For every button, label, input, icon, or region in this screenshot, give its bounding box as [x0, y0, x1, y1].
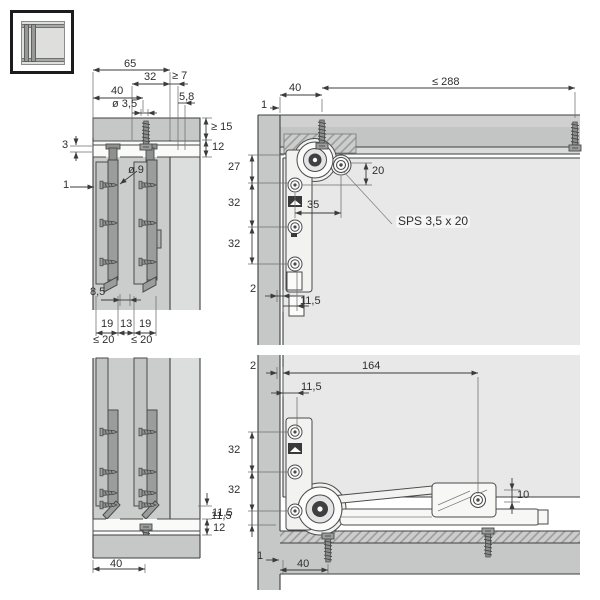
- dim-11-5-top: 11,5: [301, 381, 322, 393]
- dim-32b: 32: [228, 484, 240, 496]
- dim-2: 2: [250, 283, 256, 295]
- dim-11-5: 11,5: [300, 295, 321, 307]
- dim-3: 3: [62, 139, 68, 151]
- dim-19a: 19: [101, 318, 113, 330]
- dim-max-20b: ≤ 20: [131, 334, 152, 346]
- technical-drawing-page: 65 32 ≥ 7 40 5,8 ø 3,5 ≥ 15 12 3 1 ø 9 8…: [0, 0, 600, 600]
- dim-max-288: ≤ 288: [432, 76, 459, 88]
- dim-13: 13: [120, 318, 132, 330]
- dim-10: 10: [517, 489, 529, 501]
- dim-12: 12: [213, 522, 225, 534]
- dim-40: 40: [110, 558, 122, 570]
- dim-min-15: ≥ 15: [211, 121, 232, 133]
- dim-width-40: 40: [111, 85, 123, 97]
- dim-1: 1: [261, 99, 267, 111]
- top-panel: [258, 115, 580, 127]
- dim-32a: 32: [228, 197, 240, 209]
- dim-20: 20: [372, 165, 384, 177]
- dim-32b: 32: [228, 238, 240, 250]
- dim-dia-3-5: ø 3,5: [112, 98, 137, 110]
- door-side-view: [283, 158, 580, 345]
- dim-1: 1: [63, 179, 69, 191]
- dim-max-20a: ≤ 20: [93, 334, 114, 346]
- side-panel: [170, 140, 200, 310]
- dim-min-7: ≥ 7: [172, 70, 187, 82]
- dim-5-8: 5,8: [179, 91, 194, 103]
- side-panel: [170, 358, 200, 519]
- dim-19b: 19: [139, 318, 151, 330]
- dim-2: 2: [250, 360, 256, 372]
- dim-35: 35: [307, 199, 319, 211]
- dim-width-65: 65: [124, 58, 136, 70]
- dim-8-5: 8,5: [90, 286, 105, 298]
- dim-11-5: 11,5: [211, 510, 232, 522]
- dim-12: 12: [212, 141, 224, 153]
- door-side-view: [283, 355, 580, 497]
- dim-40: 40: [297, 558, 309, 570]
- bottom-panel: [93, 535, 200, 558]
- dim-32a: 32: [228, 444, 240, 456]
- dim-width-40: 40: [289, 82, 301, 94]
- screw-spec-note: SPS 3,5 x 20: [396, 215, 470, 228]
- dim-dia-9: ø 9: [128, 164, 144, 176]
- side-wall: [258, 115, 280, 345]
- view-bottom-track-section: [93, 358, 212, 573]
- dim-27: 27: [228, 161, 240, 173]
- dim-164: 164: [362, 360, 380, 372]
- view-bottom-fitting-side: [248, 355, 580, 590]
- dim-width-32: 32: [144, 71, 156, 83]
- dim-1: 1: [257, 550, 263, 562]
